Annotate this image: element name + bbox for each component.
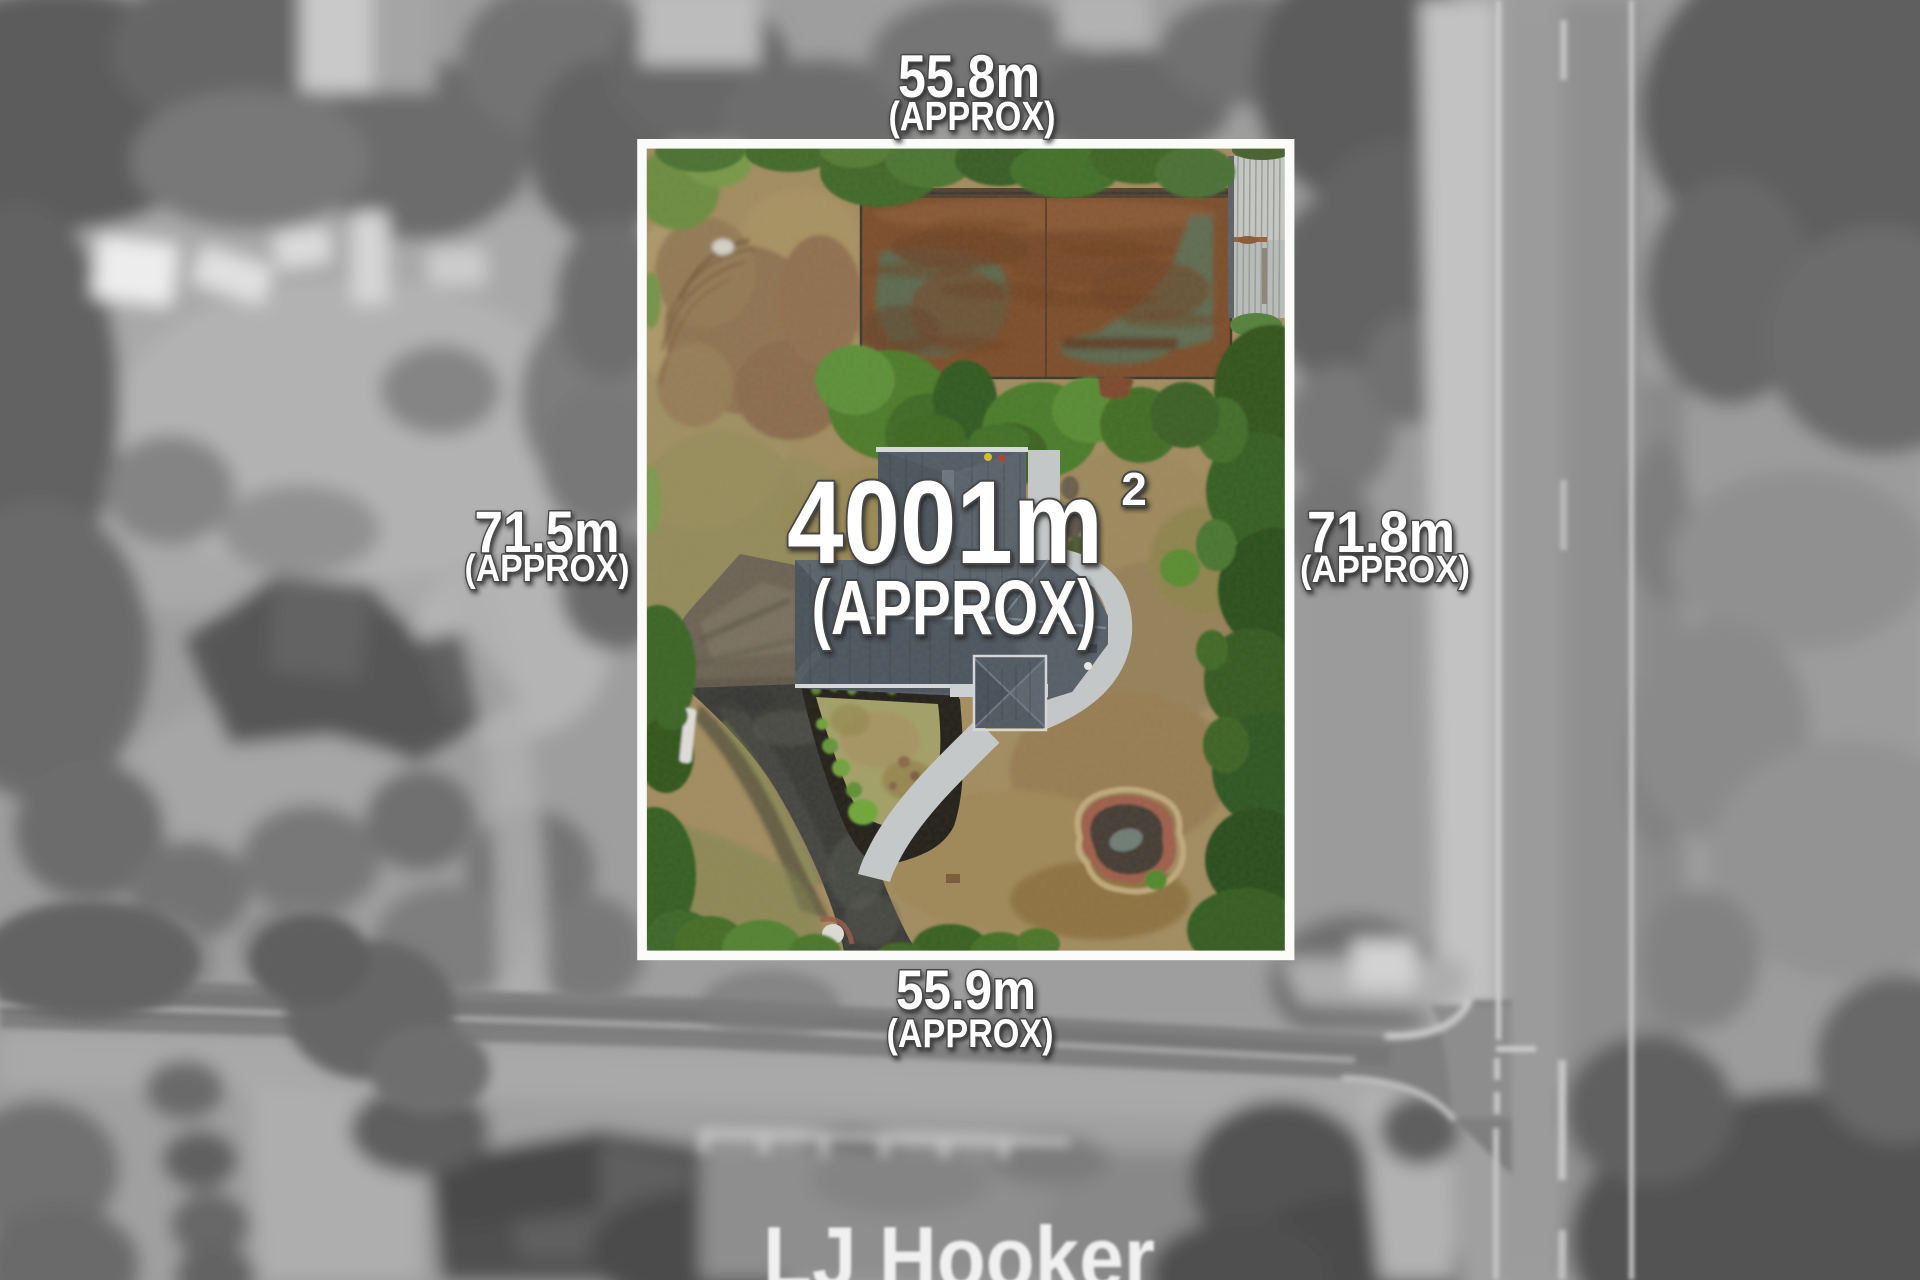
svg-text:LJ Hooker: LJ Hooker (763, 1208, 1155, 1280)
svg-text:(APPROX): (APPROX) (887, 1012, 1054, 1056)
svg-text:(APPROX): (APPROX) (465, 548, 630, 590)
svg-text:(APPROX): (APPROX) (889, 93, 1056, 139)
svg-text:(APPROX): (APPROX) (812, 565, 1097, 651)
svg-text:2: 2 (1121, 463, 1147, 515)
svg-text:(APPROX): (APPROX) (1300, 549, 1470, 591)
